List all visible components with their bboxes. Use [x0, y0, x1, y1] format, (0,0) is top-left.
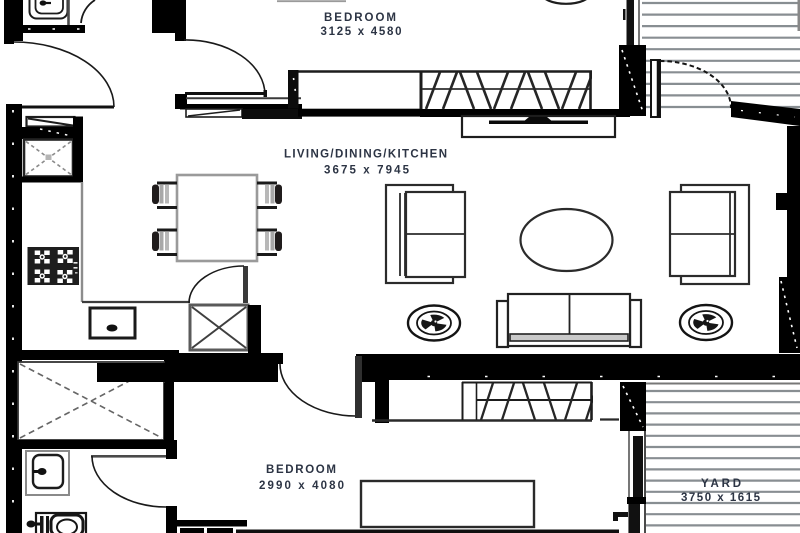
svg-text:3675 x 7945: 3675 x 7945 — [324, 164, 410, 176]
svg-text:3125 x 4580: 3125 x 4580 — [321, 26, 402, 38]
svg-text:BEDROOM: BEDROOM — [266, 464, 336, 476]
svg-text:2990 x 4080: 2990 x 4080 — [259, 480, 344, 492]
svg-text:3750 x 1615: 3750 x 1615 — [681, 492, 761, 504]
svg-text:YARD: YARD — [701, 478, 741, 490]
svg-text:LIVING/DINING/KITCHEN: LIVING/DINING/KITCHEN — [284, 149, 447, 161]
